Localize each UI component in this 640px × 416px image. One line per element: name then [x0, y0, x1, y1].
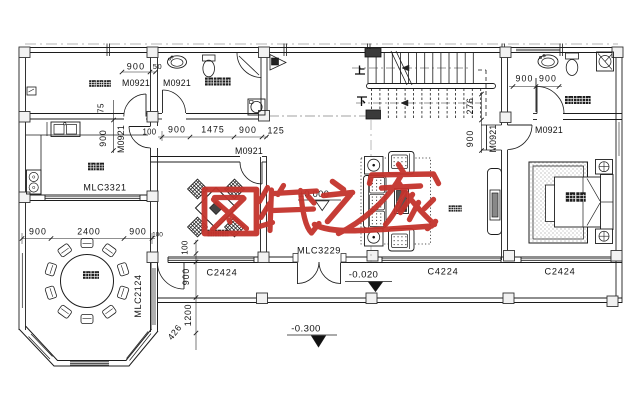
svg-text:900: 900	[239, 125, 257, 135]
svg-text:100: 100	[181, 240, 190, 255]
svg-text:M0921: M0921	[235, 146, 263, 156]
svg-text:900: 900	[465, 130, 475, 147]
svg-text:1200: 1200	[183, 304, 193, 326]
svg-text:-0.020: -0.020	[349, 270, 379, 281]
svg-text:-0.300: -0.300	[291, 324, 321, 335]
svg-text:900: 900	[181, 268, 191, 285]
svg-text:75: 75	[97, 103, 106, 113]
svg-text:900: 900	[168, 125, 186, 135]
svg-text:MLC2124: MLC2124	[133, 274, 143, 317]
svg-text:900: 900	[29, 227, 47, 237]
svg-text:900: 900	[516, 74, 534, 84]
svg-text:900: 900	[98, 129, 108, 146]
svg-text:C2424: C2424	[544, 267, 575, 277]
svg-text:M0921: M0921	[535, 125, 563, 135]
svg-text:100: 100	[152, 232, 163, 239]
svg-text:276: 276	[465, 97, 475, 114]
svg-text:900: 900	[129, 227, 146, 237]
svg-text:2400: 2400	[77, 227, 101, 237]
svg-text:100: 100	[143, 128, 157, 137]
svg-text:M0921: M0921	[116, 125, 126, 153]
svg-text:MLC3321: MLC3321	[83, 183, 126, 193]
svg-text:MLC3229: MLC3229	[297, 246, 341, 256]
svg-text:900: 900	[127, 62, 146, 72]
svg-text:M0921: M0921	[163, 78, 191, 88]
svg-text:M0921: M0921	[122, 78, 150, 88]
svg-text:50: 50	[153, 62, 163, 71]
svg-text:C4224: C4224	[427, 267, 458, 277]
svg-text:C2424: C2424	[206, 268, 237, 278]
svg-text:M0921: M0921	[488, 125, 498, 153]
svg-text:125: 125	[267, 126, 284, 136]
svg-text:1475: 1475	[201, 125, 225, 135]
svg-text:900: 900	[539, 74, 557, 84]
